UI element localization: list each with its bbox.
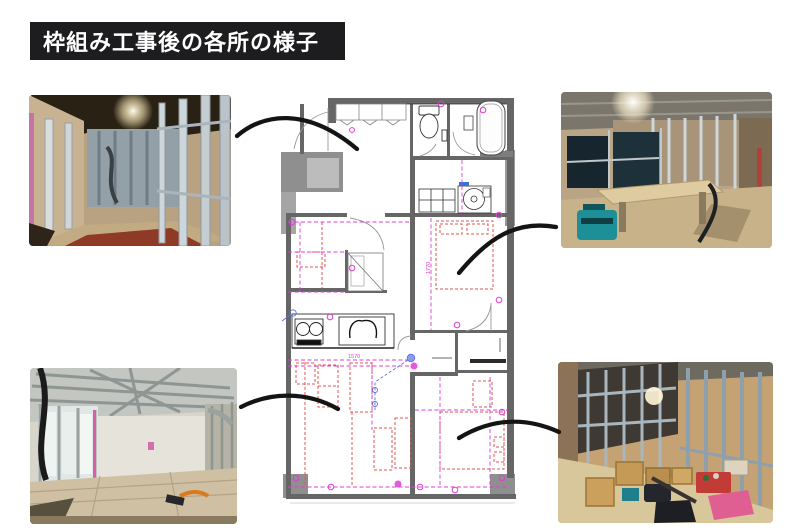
photo-top-right-scene: [561, 92, 772, 248]
photo-bottom-right-scene: [558, 362, 773, 523]
work-light: [645, 387, 663, 405]
bath-door-arc: [453, 132, 475, 155]
photo-top-right-construction: [561, 92, 772, 248]
left-wall: [29, 95, 84, 246]
floor-plan: 1570 1770: [280, 85, 525, 525]
photo-bottom-left-scene: [30, 368, 237, 524]
blue-marker: [459, 182, 469, 186]
photo-bottom-left-construction: [30, 368, 237, 524]
back-wall: [85, 416, 207, 478]
floor-plan-drawing: 1570 1770: [280, 85, 525, 525]
magenta-edge: [29, 113, 34, 225]
closet-annotations: [432, 338, 506, 363]
title-banner: 枠組み工事後の各所の様子: [30, 22, 345, 60]
bathtub-fixture: [464, 101, 505, 155]
pink-tape-mark: [148, 442, 154, 450]
page-title: 枠組み工事後の各所の様子: [30, 25, 319, 57]
laundry-area: [419, 186, 491, 213]
kitchen-counter: [292, 314, 394, 348]
entry-closets: [336, 104, 406, 125]
west-closet: [348, 253, 383, 291]
toilet-fixture: [419, 106, 447, 141]
dimension-label-vertical: 1770: [426, 262, 432, 274]
far-wall: [87, 129, 183, 207]
photo-top-left-construction: [29, 95, 231, 246]
pink-tape: [93, 410, 96, 478]
dimension-label-horizontal: 1570: [348, 354, 360, 360]
meter-box: [307, 158, 339, 188]
red-crate: [696, 472, 731, 493]
floor-edge: [30, 516, 237, 524]
page: 枠組み工事後の各所の様子: [0, 0, 800, 530]
entry-door: [294, 108, 328, 151]
windows: [38, 404, 98, 484]
teal-toolbox: [622, 488, 639, 501]
photo-top-left-scene: [29, 95, 231, 246]
furniture-outlines: [296, 221, 504, 487]
photo-bottom-right-construction: [558, 362, 773, 523]
